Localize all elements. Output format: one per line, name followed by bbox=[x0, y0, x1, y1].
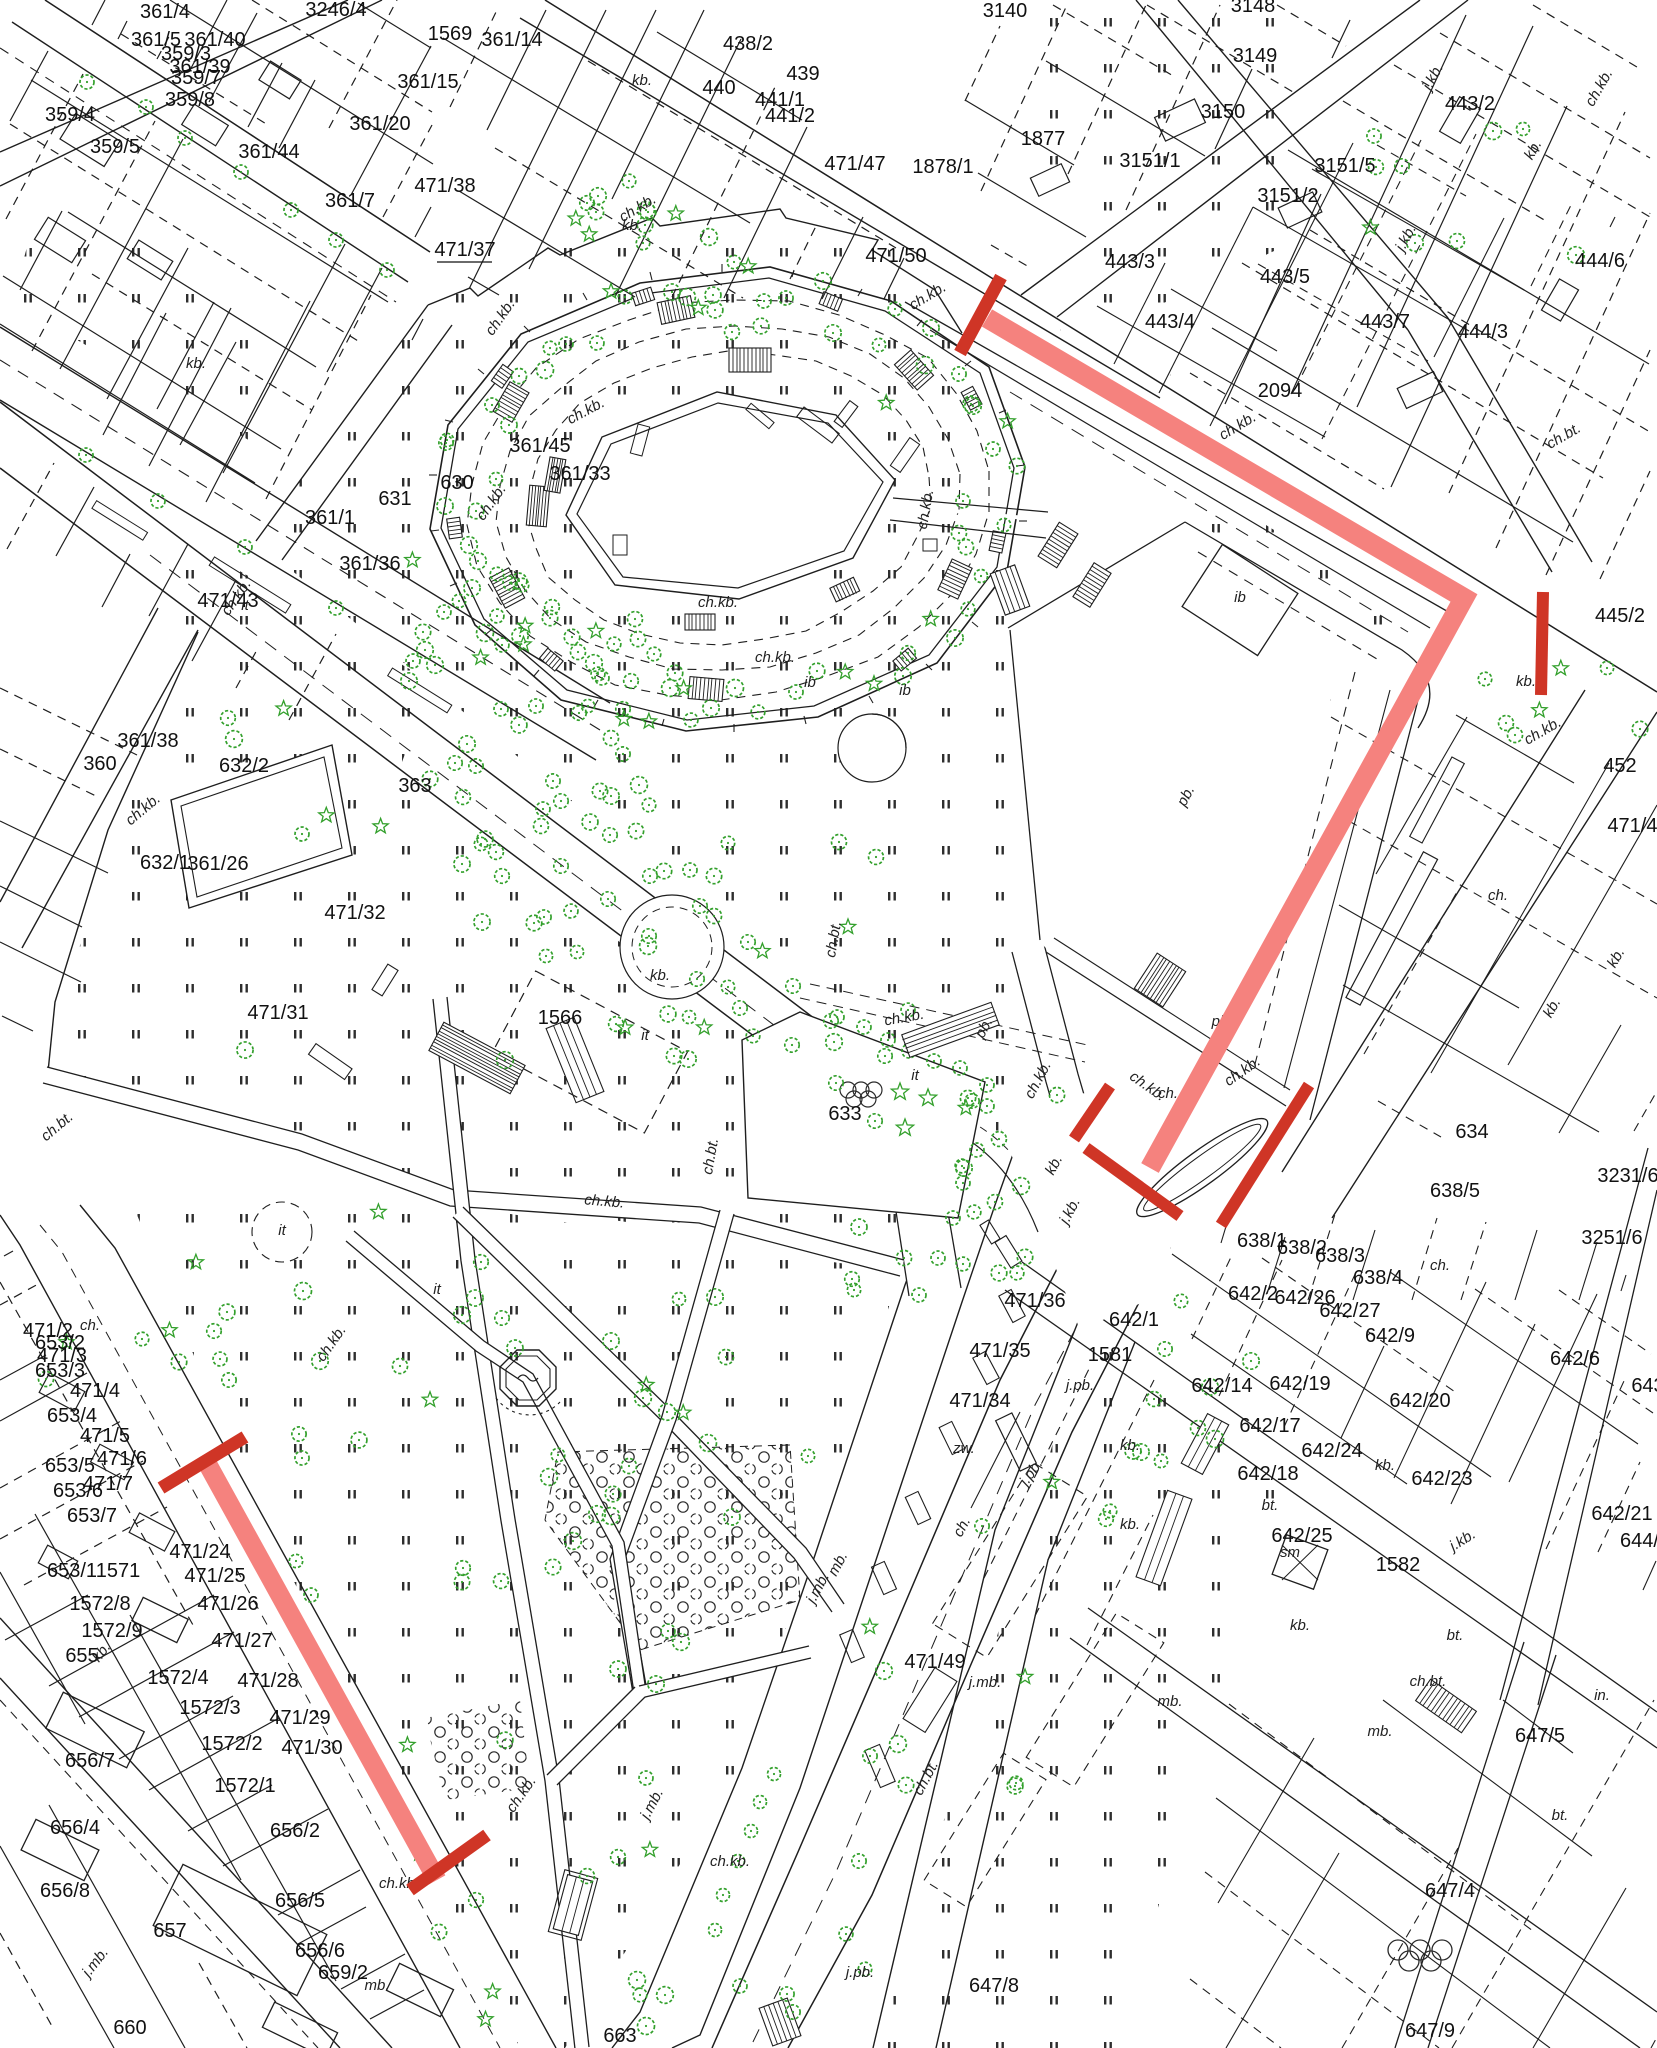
svg-text:438/2: 438/2 bbox=[723, 33, 773, 55]
svg-text:ch.: ch. bbox=[1488, 887, 1508, 904]
svg-text:kb.: kb. bbox=[1375, 1457, 1395, 1474]
svg-text:642/1: 642/1 bbox=[1109, 1309, 1159, 1331]
svg-text:j.pb.: j.pb. bbox=[844, 1964, 874, 1981]
svg-text:642/20: 642/20 bbox=[1389, 1390, 1450, 1412]
svg-text:1878/1: 1878/1 bbox=[912, 156, 973, 178]
svg-text:656/6: 656/6 bbox=[295, 1940, 345, 1962]
svg-text:642/9: 642/9 bbox=[1365, 1325, 1415, 1347]
svg-text:361/20: 361/20 bbox=[349, 113, 410, 135]
svg-text:2094: 2094 bbox=[1258, 380, 1303, 402]
svg-text:360: 360 bbox=[83, 753, 116, 775]
svg-text:471/28: 471/28 bbox=[237, 1670, 298, 1692]
svg-text:ch.kb.: ch.kb. bbox=[710, 1853, 750, 1870]
svg-text:359/8: 359/8 bbox=[165, 89, 215, 111]
svg-text:471/7: 471/7 bbox=[83, 1473, 133, 1495]
svg-text:471/27: 471/27 bbox=[211, 1630, 272, 1652]
svg-text:it: it bbox=[278, 1222, 286, 1239]
svg-text:3151/1: 3151/1 bbox=[1119, 150, 1180, 172]
svg-text:1569: 1569 bbox=[428, 23, 473, 45]
svg-text:1572/1: 1572/1 bbox=[214, 1775, 275, 1797]
svg-text:j.pb.: j.pb. bbox=[1064, 1377, 1094, 1394]
svg-text:656/8: 656/8 bbox=[40, 1880, 90, 1902]
svg-text:471/47: 471/47 bbox=[824, 153, 885, 175]
svg-text:471/32: 471/32 bbox=[324, 902, 385, 924]
svg-text:bt.: bt. bbox=[1552, 1807, 1569, 1824]
svg-text:359/4: 359/4 bbox=[45, 104, 95, 126]
svg-text:kb.: kb. bbox=[186, 355, 206, 372]
svg-text:1877: 1877 bbox=[1021, 128, 1066, 150]
svg-text:471/29: 471/29 bbox=[269, 1707, 330, 1729]
svg-text:471/44: 471/44 bbox=[1607, 815, 1657, 837]
svg-text:656/2: 656/2 bbox=[270, 1820, 320, 1842]
svg-text:444/3: 444/3 bbox=[1458, 321, 1508, 343]
svg-text:3151/5: 3151/5 bbox=[1314, 155, 1375, 177]
svg-text:it: it bbox=[911, 1067, 919, 1084]
svg-text:in.: in. bbox=[1594, 1687, 1610, 1704]
svg-text:bt.: bt. bbox=[1262, 1497, 1279, 1514]
svg-text:642/17: 642/17 bbox=[1239, 1415, 1300, 1437]
svg-text:471/25: 471/25 bbox=[184, 1565, 245, 1587]
svg-text:630: 630 bbox=[440, 472, 473, 494]
svg-text:mb.: mb. bbox=[1157, 1693, 1182, 1710]
svg-text:kb.: kb. bbox=[1290, 1617, 1310, 1634]
svg-text:647/4: 647/4 bbox=[1425, 1880, 1475, 1902]
svg-text:ib: ib bbox=[1234, 589, 1246, 606]
svg-text:3151/2: 3151/2 bbox=[1257, 185, 1318, 207]
svg-text:j.mb.: j.mb. bbox=[967, 1674, 1002, 1691]
svg-text:361/7: 361/7 bbox=[325, 190, 375, 212]
svg-text:471/24: 471/24 bbox=[169, 1541, 230, 1563]
svg-text:471/26: 471/26 bbox=[197, 1593, 258, 1615]
svg-text:443/7: 443/7 bbox=[1360, 311, 1410, 333]
svg-text:638/3: 638/3 bbox=[1315, 1245, 1365, 1267]
svg-text:642/14: 642/14 bbox=[1191, 1375, 1252, 1397]
svg-text:1572/8: 1572/8 bbox=[69, 1593, 130, 1615]
svg-text:647/9: 647/9 bbox=[1405, 2020, 1455, 2042]
svg-text:642/6: 642/6 bbox=[1550, 1348, 1600, 1370]
svg-text:it: it bbox=[433, 1281, 441, 1298]
svg-text:653/7: 653/7 bbox=[67, 1505, 117, 1527]
svg-text:359/5: 359/5 bbox=[90, 136, 140, 158]
svg-text:644/1: 644/1 bbox=[1620, 1530, 1657, 1552]
svg-text:zw.: zw. bbox=[952, 1440, 975, 1457]
svg-text:471/2: 471/2 bbox=[23, 1320, 73, 1342]
svg-text:ch.kb.: ch.kb. bbox=[698, 594, 738, 611]
svg-text:638/4: 638/4 bbox=[1353, 1267, 1403, 1289]
svg-text:642/27: 642/27 bbox=[1319, 1300, 1380, 1322]
svg-text:443/5: 443/5 bbox=[1260, 266, 1310, 288]
svg-text:471/34: 471/34 bbox=[949, 1390, 1010, 1412]
svg-text:632/2: 632/2 bbox=[219, 755, 269, 777]
svg-text:439: 439 bbox=[786, 63, 819, 85]
svg-text:kb.: kb. bbox=[650, 967, 670, 984]
svg-text:653/3: 653/3 bbox=[35, 1360, 85, 1382]
svg-text:mb.: mb. bbox=[1367, 1723, 1392, 1740]
svg-text:359/7: 359/7 bbox=[171, 67, 221, 89]
svg-text:642/23: 642/23 bbox=[1411, 1468, 1472, 1490]
svg-text:361/45: 361/45 bbox=[509, 435, 570, 457]
svg-text:361/38: 361/38 bbox=[117, 730, 178, 752]
svg-text:361/4: 361/4 bbox=[140, 1, 190, 23]
svg-text:441/2: 441/2 bbox=[765, 105, 815, 127]
svg-text:3148: 3148 bbox=[1231, 0, 1276, 17]
svg-text:361/44: 361/44 bbox=[238, 141, 299, 163]
svg-text:361/33: 361/33 bbox=[549, 463, 610, 485]
svg-text:452: 452 bbox=[1603, 755, 1636, 777]
svg-text:642/19: 642/19 bbox=[1269, 1373, 1330, 1395]
svg-text:kb.: kb. bbox=[1120, 1516, 1140, 1533]
svg-text:kb.: kb. bbox=[632, 72, 652, 89]
svg-text:ch.bt.: ch.bt. bbox=[1410, 1673, 1447, 1690]
svg-text:ch.: ch. bbox=[1158, 1085, 1178, 1102]
svg-text:1572/3: 1572/3 bbox=[179, 1697, 240, 1719]
svg-text:3150: 3150 bbox=[1201, 101, 1246, 123]
svg-text:471/38: 471/38 bbox=[414, 175, 475, 197]
svg-text:it: it bbox=[241, 597, 249, 614]
svg-text:ib: ib bbox=[899, 682, 911, 699]
svg-text:443/3: 443/3 bbox=[1105, 251, 1155, 273]
svg-text:656/5: 656/5 bbox=[275, 1890, 325, 1912]
svg-text:657: 657 bbox=[153, 1920, 186, 1942]
svg-text:633: 633 bbox=[828, 1103, 861, 1125]
svg-text:bt.: bt. bbox=[1447, 1627, 1464, 1644]
svg-text:3231/6: 3231/6 bbox=[1597, 1165, 1657, 1187]
svg-text:361/15: 361/15 bbox=[397, 71, 458, 93]
svg-text:440: 440 bbox=[702, 77, 735, 99]
svg-text:471/37: 471/37 bbox=[434, 239, 495, 261]
svg-text:361/26: 361/26 bbox=[187, 853, 248, 875]
svg-text:653/4: 653/4 bbox=[47, 1405, 97, 1427]
svg-text:647/5: 647/5 bbox=[1515, 1725, 1565, 1747]
svg-text:3251/6: 3251/6 bbox=[1581, 1227, 1642, 1249]
svg-text:642/2: 642/2 bbox=[1228, 1283, 1278, 1305]
svg-text:ch.: ch. bbox=[80, 1317, 100, 1334]
svg-text:656/7: 656/7 bbox=[65, 1750, 115, 1772]
svg-text:kb.: kb. bbox=[1120, 1437, 1140, 1454]
svg-text:443/4: 443/4 bbox=[1145, 311, 1195, 333]
svg-text:471/31: 471/31 bbox=[247, 1002, 308, 1024]
svg-text:631: 631 bbox=[378, 488, 411, 510]
svg-text:653/1: 653/1 bbox=[47, 1560, 97, 1582]
svg-text:642/18: 642/18 bbox=[1237, 1463, 1298, 1485]
svg-text:471/36: 471/36 bbox=[1004, 1290, 1065, 1312]
svg-text:it: it bbox=[641, 1027, 649, 1044]
svg-text:660: 660 bbox=[113, 2017, 146, 2039]
svg-text:ch.kb.: ch.kb. bbox=[755, 649, 795, 666]
svg-text:445/2: 445/2 bbox=[1595, 605, 1645, 627]
svg-text:sm: sm bbox=[1280, 1544, 1300, 1561]
svg-text:ib: ib bbox=[804, 674, 816, 691]
svg-text:642/21: 642/21 bbox=[1591, 1503, 1652, 1525]
svg-text:659/2: 659/2 bbox=[318, 1962, 368, 1984]
svg-text:1572/2: 1572/2 bbox=[201, 1733, 262, 1755]
svg-text:471/4: 471/4 bbox=[70, 1380, 120, 1402]
svg-text:471/50: 471/50 bbox=[865, 245, 926, 267]
svg-text:444/6: 444/6 bbox=[1575, 250, 1625, 272]
svg-text:363: 363 bbox=[398, 775, 431, 797]
svg-text:663: 663 bbox=[603, 2025, 636, 2047]
svg-text:638/5: 638/5 bbox=[1430, 1180, 1480, 1202]
svg-text:3246/4: 3246/4 bbox=[305, 0, 366, 21]
svg-text:647/8: 647/8 bbox=[969, 1975, 1019, 1997]
svg-text:471/6: 471/6 bbox=[97, 1448, 147, 1470]
svg-text:471/30: 471/30 bbox=[281, 1737, 342, 1759]
svg-text:1581: 1581 bbox=[1088, 1344, 1133, 1366]
svg-text:361/1: 361/1 bbox=[305, 507, 355, 529]
svg-text:632/1: 632/1 bbox=[140, 852, 190, 874]
svg-text:634: 634 bbox=[1455, 1121, 1488, 1143]
svg-text:471/35: 471/35 bbox=[969, 1340, 1030, 1362]
svg-text:ch.kb.: ch.kb. bbox=[584, 1191, 625, 1211]
svg-text:3149: 3149 bbox=[1233, 45, 1278, 67]
svg-text:656/4: 656/4 bbox=[50, 1817, 100, 1839]
svg-text:1566: 1566 bbox=[538, 1007, 583, 1029]
svg-text:1571: 1571 bbox=[96, 1560, 141, 1582]
svg-text:1572/4: 1572/4 bbox=[147, 1667, 208, 1689]
svg-text:1582: 1582 bbox=[1376, 1554, 1421, 1576]
svg-text:361/14: 361/14 bbox=[481, 29, 542, 51]
svg-text:kb.: kb. bbox=[1516, 673, 1536, 690]
svg-text:mb.: mb. bbox=[364, 1977, 389, 1994]
svg-text:ch.: ch. bbox=[1430, 1257, 1450, 1274]
svg-text:471/5: 471/5 bbox=[80, 1425, 130, 1447]
svg-text:kb.: kb. bbox=[622, 217, 642, 234]
svg-text:471/49: 471/49 bbox=[904, 1651, 965, 1673]
svg-text:642/24: 642/24 bbox=[1301, 1440, 1362, 1462]
svg-text:1572/9: 1572/9 bbox=[81, 1620, 142, 1642]
svg-text:3140: 3140 bbox=[983, 0, 1028, 22]
svg-text:643: 643 bbox=[1631, 1375, 1657, 1397]
svg-text:443/2: 443/2 bbox=[1445, 93, 1495, 115]
svg-text:361/36: 361/36 bbox=[339, 553, 400, 575]
